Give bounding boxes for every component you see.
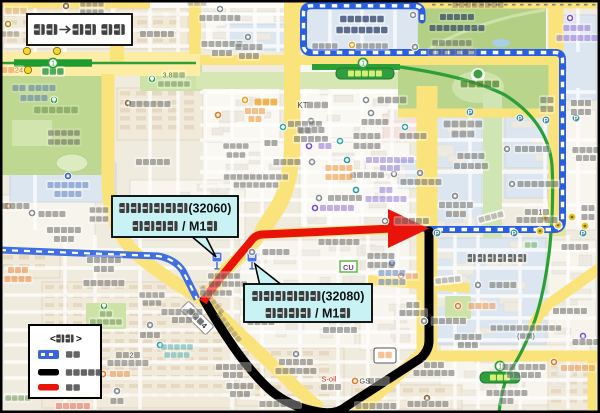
svg-text:P: P bbox=[512, 231, 517, 238]
svg-text:P: P bbox=[518, 116, 523, 123]
svg-text:(32080): (32080) bbox=[321, 290, 364, 304]
svg-text:3.8: 3.8 bbox=[163, 73, 173, 80]
svg-text:1: 1 bbox=[361, 61, 365, 68]
svg-text:>: > bbox=[76, 334, 82, 345]
svg-text:24: 24 bbox=[15, 66, 23, 75]
svg-text:KT: KT bbox=[297, 101, 307, 110]
svg-text:CU: CU bbox=[343, 263, 354, 272]
svg-text:P: P bbox=[581, 231, 586, 238]
svg-text:): ) bbox=[533, 334, 535, 341]
svg-text:1: 1 bbox=[51, 61, 55, 68]
svg-text:/: / bbox=[182, 220, 186, 234]
svg-text:/: / bbox=[315, 307, 319, 321]
svg-text:P: P bbox=[544, 118, 549, 125]
svg-text:P: P bbox=[468, 110, 473, 117]
svg-text:M1: M1 bbox=[322, 307, 339, 321]
svg-text:<: < bbox=[50, 334, 56, 345]
svg-text:M1: M1 bbox=[189, 220, 206, 234]
svg-text:(32060): (32060) bbox=[188, 202, 231, 216]
svg-text:P: P bbox=[435, 231, 440, 238]
